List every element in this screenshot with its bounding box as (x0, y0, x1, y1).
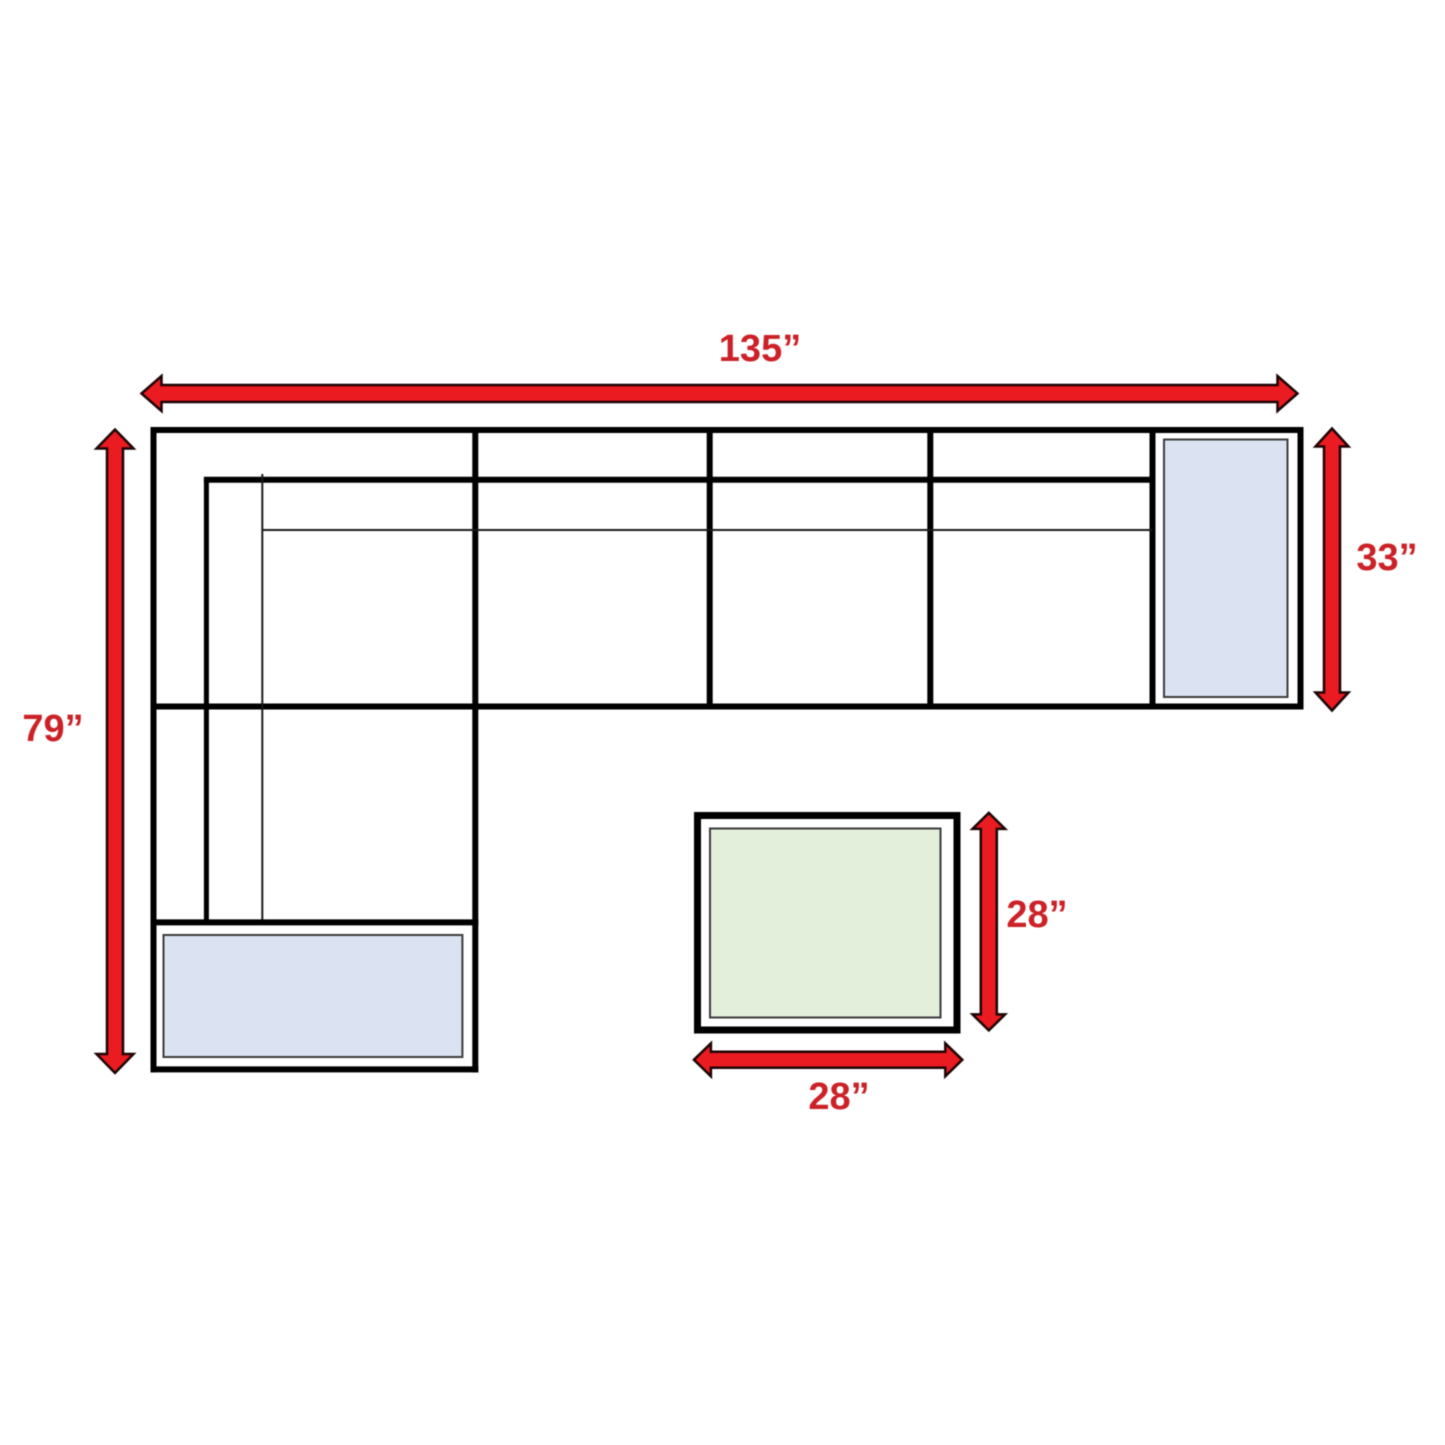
svg-text:28”: 28” (1006, 894, 1067, 936)
svg-text:28”: 28” (808, 1076, 869, 1118)
svg-text:135”: 135” (719, 328, 801, 370)
svg-text:79”: 79” (22, 708, 83, 750)
svg-text:33”: 33” (1356, 537, 1417, 579)
